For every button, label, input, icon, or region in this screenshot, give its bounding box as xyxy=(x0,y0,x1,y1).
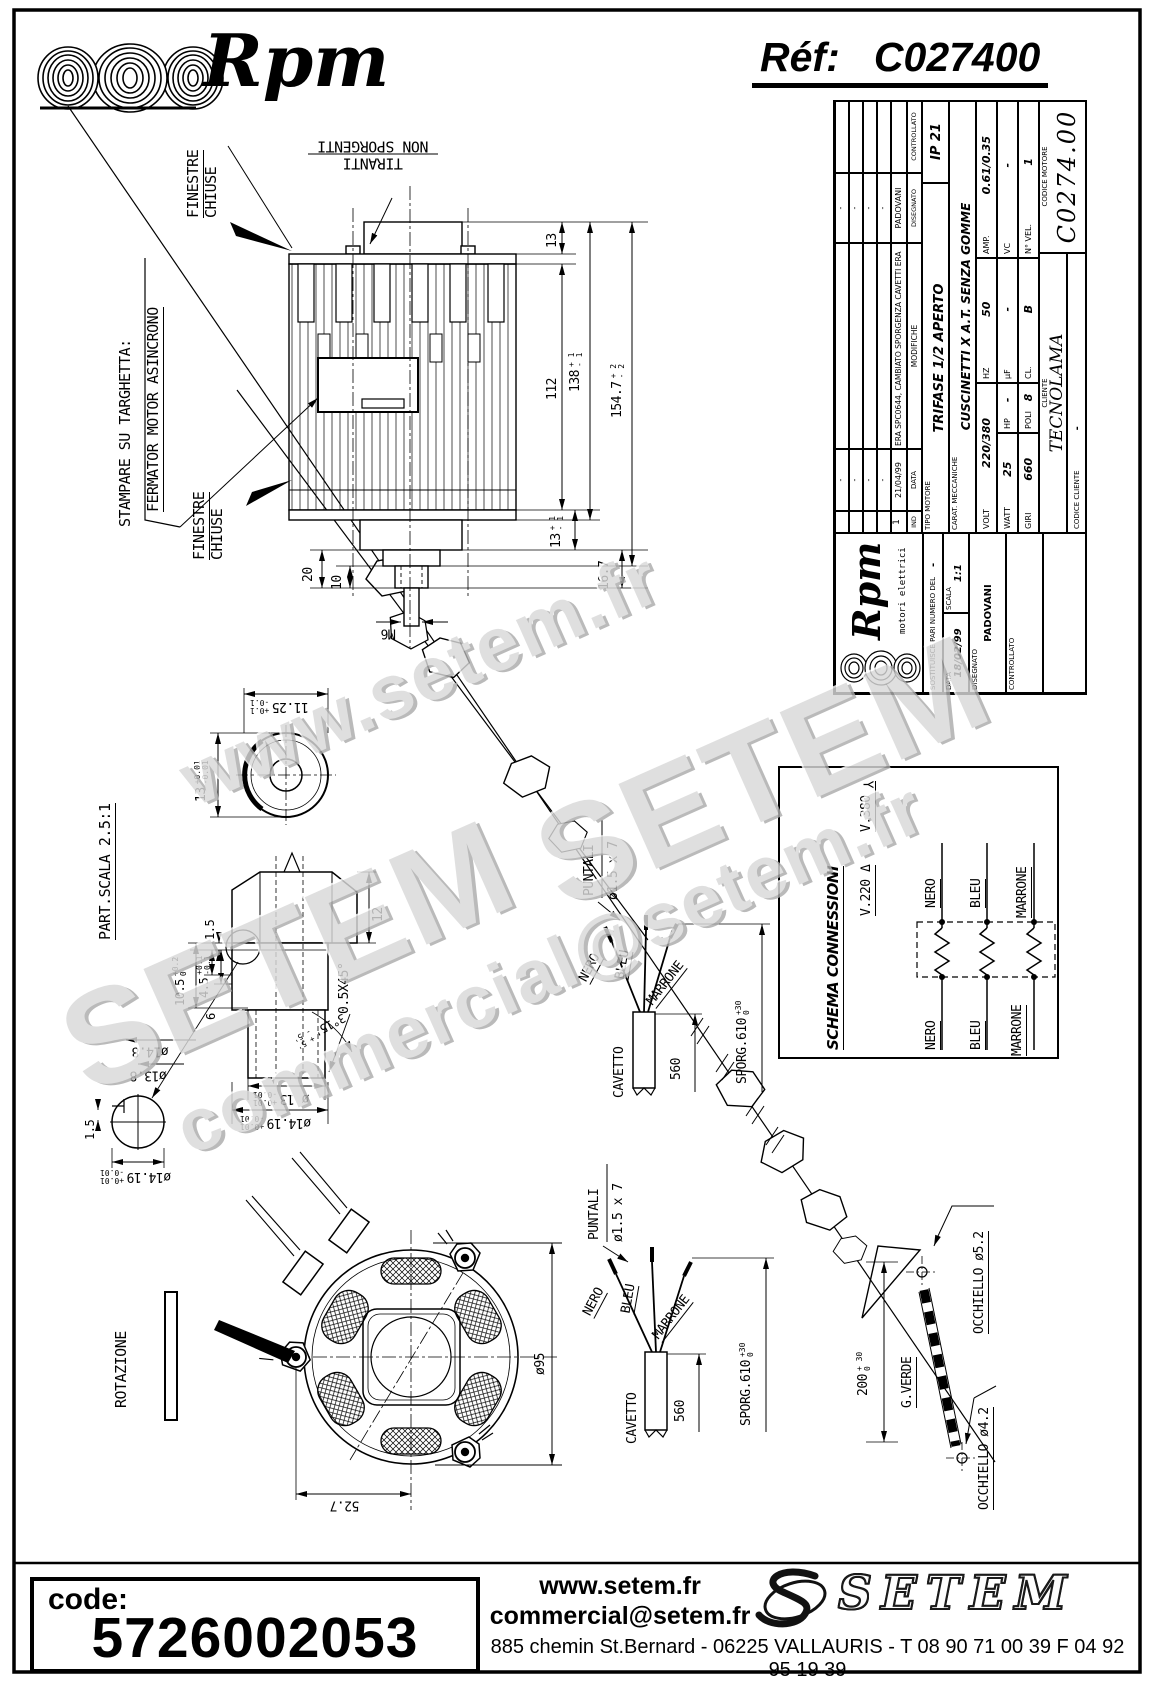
setem-logo-text: SETEM xyxy=(838,1566,1076,1621)
tb-giri: GIRI 660 xyxy=(1018,433,1039,533)
tb-uf: µF - xyxy=(997,258,1018,383)
tb-logo-box: Rpm motori elettrici xyxy=(835,533,923,693)
dim-112: 112 xyxy=(546,378,560,400)
dim-12: 12 xyxy=(372,907,386,922)
schema-bleu-top: BLEU xyxy=(970,879,986,908)
dim-dia-14-8: ø14.8 xyxy=(132,1044,169,1058)
label-puntali-2: PUNTALI xyxy=(588,1189,602,1240)
tb-rev1-ind: 1 xyxy=(891,511,907,533)
dim-13-bottom: 13+ 1- 1 xyxy=(549,516,565,548)
tb-amp: AMP. 0.61/0.35 xyxy=(976,100,997,258)
ref-label: Réf: xyxy=(760,34,840,80)
dim-560-2: 560 xyxy=(674,1400,688,1422)
footer-address: 885 chemin St.Bernard - 06225 VALLAURIS … xyxy=(480,1636,1135,1682)
dim-20: 20 xyxy=(302,567,316,582)
schema-title: SCHEMA CONNESSIONI xyxy=(826,866,844,1050)
tb-volt: VOLT 220/380 xyxy=(976,383,997,533)
note-fermator: FERMATOR MOTOR ASINCRONO xyxy=(146,307,164,512)
code-box: code: 5726002053 xyxy=(30,1577,480,1673)
dim-chamfer: 0.5X45° xyxy=(338,963,352,1014)
schema-v380: V.380 Y xyxy=(860,781,876,832)
schema-nero-bottom: NERO xyxy=(925,1021,941,1050)
tb-hp: HP - xyxy=(997,383,1018,433)
dim-10-5: 10.5+0.20 xyxy=(172,957,188,1006)
dim-10: 10 xyxy=(331,575,345,590)
dim-1-5-step: 1.5 xyxy=(204,920,217,940)
dim-13-detail: 13+0.01-0.01 xyxy=(194,760,210,802)
motor-side-view xyxy=(145,146,648,648)
dim-200: 200+ 300 xyxy=(856,1352,872,1396)
dim-dia-14-19-b: ø14.19+0.01-0.01 xyxy=(100,1168,171,1184)
label-puntali-size-2: ø1.5 x 7 xyxy=(612,1183,626,1242)
note-tiranti: TIRANTI NON SPORGENTI xyxy=(308,138,438,171)
code-value: 5726002053 xyxy=(34,1605,476,1671)
drawing-sheet: Rpm Réf: C027400 www.setem.fr SETEM SETE… xyxy=(0,0,1154,1683)
title-block: Rpm motori elettrici SOSTITUISCE PARI NU… xyxy=(833,100,1087,695)
tb-watt: WATT 25 xyxy=(997,433,1018,533)
tb-ip: IP 21 xyxy=(922,100,949,183)
tb-cliente: CLIENTE TECNOLAMA xyxy=(1039,253,1067,533)
dim-dia-14-19: ø14.19+0.01-0.01 xyxy=(240,1114,311,1130)
label-g-verde: G.VERDE xyxy=(901,1357,917,1408)
dim-1-5-detail: 1.5 xyxy=(84,1120,97,1140)
dim-13-top: 13 xyxy=(546,233,560,248)
tb-rev1-desc: ERA SPC0644, CAMBIATO SPORGENZA CAVETTI … xyxy=(891,243,907,449)
tb-hz: HZ 50 xyxy=(976,258,997,383)
tb-data: DATA 18/02/99 xyxy=(943,613,969,693)
dim-560-1: 560 xyxy=(670,1058,684,1080)
tb-rpm-logo: Rpm xyxy=(844,542,889,640)
schema-nero-top: NERO xyxy=(925,879,941,908)
tb-rev1-name: PADOVANI xyxy=(891,173,907,243)
schema-v220: V.220 Δ xyxy=(860,865,876,916)
label-rotazione: ROTAZIONE xyxy=(114,1331,130,1408)
wye-icon: Y xyxy=(860,781,874,788)
dim-4-5: 4.5+0.1-0.1 xyxy=(196,956,212,998)
dim-16-7: 16.7 xyxy=(598,561,612,590)
note-stampare: STAMPARE SU TARGHETTA: xyxy=(118,339,134,527)
tb-disegnato: DISEGNATO PADOVANI xyxy=(969,533,1006,693)
tb-nvel: N° VEL. 1 xyxy=(1018,100,1039,258)
tb-sostituisce: SOSTITUISCE PARI NUMERO DEL - xyxy=(923,533,943,693)
label-puntali-1: PUNTALI xyxy=(583,845,597,896)
tb-tipo-motore: TIPO MOTORE TRIFASE 1/2 APERTO xyxy=(922,183,949,533)
label-occhiello-4-2: OCCHIELLO ø4.2 xyxy=(978,1407,994,1510)
dim-sporg-2: SPORG.610+300 xyxy=(739,1343,755,1426)
schema-bleu-bottom: BLEU xyxy=(970,1021,986,1050)
label-cavetto-2: CAVETTO xyxy=(626,1393,640,1444)
schema-marrone-bottom: MARRONE xyxy=(1011,1005,1027,1056)
tb-controllato: CONTROLLATO xyxy=(1006,533,1043,693)
tb-vc: VC - xyxy=(997,100,1018,258)
detail-views xyxy=(98,688,376,1168)
label-cavetto-1: CAVETTO xyxy=(613,1047,627,1098)
label-part-scala: PART.SCALA 2.5:1 xyxy=(98,804,116,941)
rpm-logo-text: Rpm xyxy=(203,18,389,103)
schema-marrone-top: MARRONE xyxy=(1016,867,1032,918)
tb-rev1-date: 21/04/99 xyxy=(891,449,907,511)
note-finestre-chiuse-1: FINESTRECHIUSE xyxy=(186,150,220,218)
ref-value: C027400 xyxy=(874,34,1040,80)
dim-m6: M6 xyxy=(381,626,396,640)
footer-email: commercial@setem.fr xyxy=(455,1602,785,1631)
dim-dia-95: ø95 xyxy=(534,1353,548,1375)
dim-dia-13-8: ø13.8 xyxy=(130,1068,167,1082)
tb-codice-cliente: CODICE CLIENTE - xyxy=(1067,253,1087,533)
rpm-coils-icon xyxy=(38,44,223,112)
label-puntali-size-1: ø1.5 x 7 xyxy=(607,841,621,900)
tb-poli: POLI 8 xyxy=(1018,383,1039,433)
tb-empty xyxy=(1043,533,1087,693)
tb-carat: CARAT. MECCANICHE CUSCINETTI X A.T. SENZ… xyxy=(949,100,976,533)
tb-scala: SCALA 1:1 xyxy=(943,533,969,613)
tb-codice-motore: CODICE MOTORE C0274.00 xyxy=(1039,100,1087,253)
label-occhiello-5-2: OCCHIELLO ø5.2 xyxy=(973,1231,989,1334)
motor-front-view xyxy=(165,1152,562,1510)
note-finestre-chiuse-2: FINESTRECHIUSE xyxy=(192,492,226,560)
tb-cl: CL. B xyxy=(1018,258,1039,383)
dim-138: 138+ 1- 1 xyxy=(568,353,584,392)
dim-6: 6 xyxy=(205,1013,218,1020)
dim-sporg-1: SPORG.610+300 xyxy=(735,1001,751,1084)
drawing-reference: Réf: C027400 xyxy=(752,34,1048,88)
footer-site: www.setem.fr xyxy=(480,1572,760,1601)
dim-dia-13: ø 13+0.01-0.01 xyxy=(253,1090,309,1106)
dim-52-7: 52.7 xyxy=(330,1498,359,1512)
dim-11-25: 11.25+0.1-0.1 xyxy=(250,698,309,714)
tb-rpm-sub: motori elettrici xyxy=(898,547,908,634)
dim-154-7: 154.7+ 2- 2 xyxy=(610,364,626,418)
